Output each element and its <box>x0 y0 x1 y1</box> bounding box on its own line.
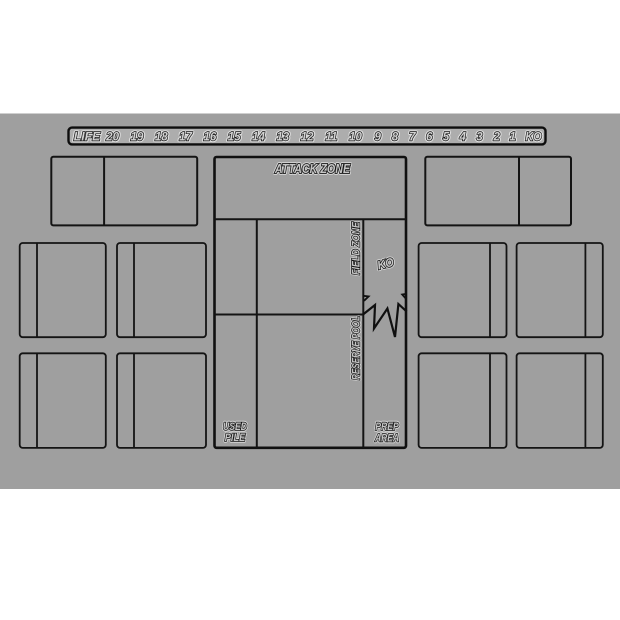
svg-text:8: 8 <box>392 131 399 144</box>
svg-text:5: 5 <box>443 131 450 144</box>
svg-text:14: 14 <box>252 131 265 144</box>
svg-text:1: 1 <box>509 131 515 144</box>
svg-text:PILE: PILE <box>225 432 246 444</box>
svg-text:USED: USED <box>223 421 247 433</box>
svg-text:9: 9 <box>374 131 381 144</box>
svg-text:4: 4 <box>458 131 466 144</box>
svg-text:KO: KO <box>525 131 541 144</box>
svg-text:FIELD ZONE: FIELD ZONE <box>351 221 363 275</box>
svg-text:PREP: PREP <box>375 421 399 433</box>
svg-text:19: 19 <box>131 131 144 144</box>
svg-text:3: 3 <box>476 131 483 144</box>
svg-text:12: 12 <box>301 131 314 144</box>
svg-text:ATTACK ZONE: ATTACK ZONE <box>274 162 351 176</box>
svg-text:15: 15 <box>228 131 241 144</box>
svg-text:18: 18 <box>155 131 168 144</box>
svg-text:AREA: AREA <box>374 433 399 445</box>
svg-text:7: 7 <box>409 131 416 144</box>
svg-text:2: 2 <box>492 131 500 144</box>
svg-text:17: 17 <box>179 131 192 144</box>
svg-text:10: 10 <box>349 131 362 144</box>
svg-text:6: 6 <box>426 131 433 144</box>
svg-text:RESERVE POOL: RESERVE POOL <box>351 316 363 380</box>
svg-text:LIFE: LIFE <box>74 131 102 144</box>
svg-text:16: 16 <box>203 131 216 144</box>
svg-text:20: 20 <box>105 131 119 144</box>
svg-text:13: 13 <box>276 131 289 144</box>
svg-text:11: 11 <box>325 131 337 144</box>
